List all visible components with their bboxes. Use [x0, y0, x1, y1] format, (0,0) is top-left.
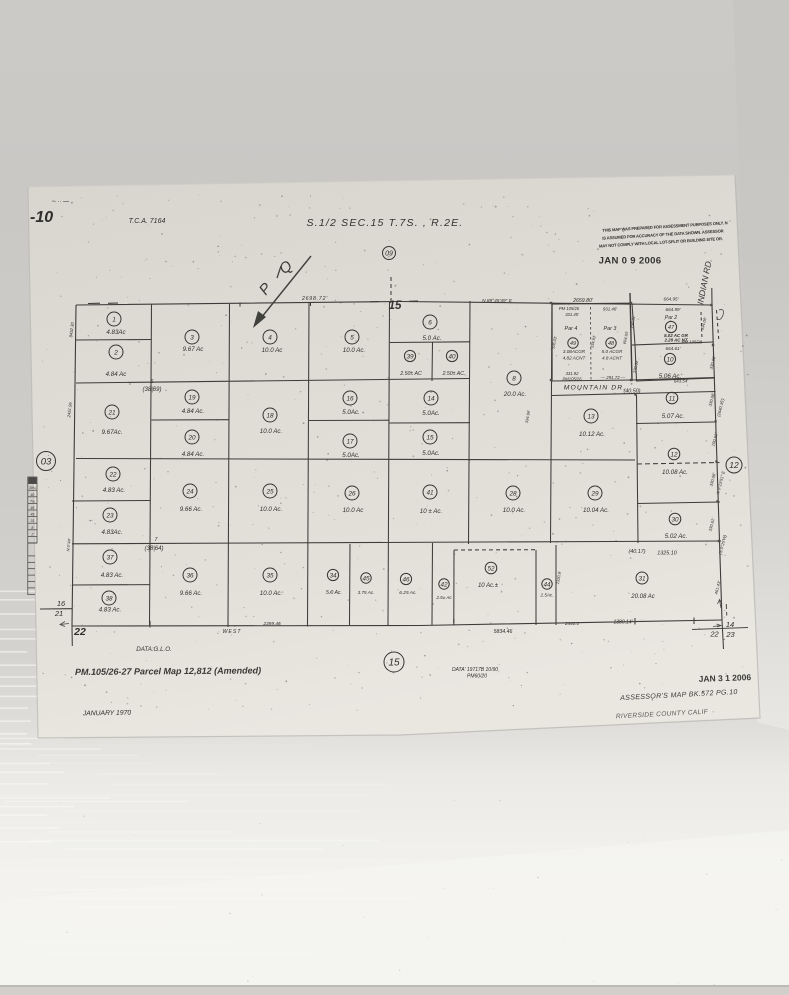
svg-text:49: 49: [570, 341, 576, 347]
svg-text:2.50± AC.: 2.50± AC.: [442, 371, 466, 377]
svg-text:4.82 ACNT: 4.82 ACNT: [563, 356, 587, 361]
svg-text:22: 22: [108, 471, 117, 478]
svg-text:5.0Ac.: 5.0Ac.: [422, 410, 440, 417]
svg-text:6.25 Ac.: 6.25 Ac.: [399, 590, 416, 596]
svg-text:7¼: 7¼: [30, 499, 35, 503]
svg-text:7: 7: [155, 537, 158, 543]
svg-text:10: 10: [666, 356, 674, 363]
svg-text:JANUARY 1970: JANUARY 1970: [82, 710, 132, 718]
svg-text:11: 11: [669, 395, 676, 402]
svg-text:12: 12: [729, 460, 739, 470]
svg-text:2: 2: [113, 349, 118, 356]
svg-text:5.0Ac.: 5.0Ac.: [342, 452, 360, 459]
svg-text:(40.50): (40.50): [623, 389, 640, 395]
svg-text:N 89°45′49″ E: N 89°45′49″ E: [482, 298, 513, 304]
svg-text:44: 44: [543, 581, 551, 588]
svg-text:22: 22: [73, 626, 86, 638]
svg-text:PM 105/28: PM 105/28: [682, 340, 703, 345]
svg-text:331.92: 331.92: [566, 371, 579, 376]
svg-text:Par 2: Par 2: [665, 315, 678, 321]
svg-text:3: 3: [190, 334, 194, 341]
svg-text:10.0 Ac: 10.0 Ac: [343, 507, 365, 514]
svg-text:03: 03: [41, 456, 52, 467]
svg-text:40: 40: [30, 493, 34, 497]
svg-text:10.08 Ac.: 10.08 Ac.: [662, 469, 688, 476]
svg-text:2.50± AC: 2.50± AC: [399, 371, 422, 377]
svg-text:28: 28: [508, 490, 517, 497]
svg-text:25: 25: [265, 488, 274, 495]
svg-text:JAN 0 9 2006: JAN 0 9 2006: [599, 256, 662, 267]
svg-text:35: 35: [266, 572, 274, 579]
svg-text:4.83 Ac.: 4.83 Ac.: [99, 607, 121, 614]
svg-text:5.02 Ac.: 5.02 Ac.: [665, 533, 687, 540]
svg-text:2440.0: 2440.0: [564, 621, 579, 626]
svg-text:36: 36: [186, 572, 194, 579]
svg-text:24: 24: [185, 488, 194, 495]
svg-text:5.0 Ac.: 5.0 Ac.: [422, 335, 441, 342]
svg-text:52: 52: [487, 565, 495, 572]
svg-text:10 Ac.±: 10 Ac.±: [478, 583, 499, 589]
svg-text:18: 18: [266, 412, 274, 419]
svg-text:5.0 Ac.: 5.0 Ac.: [326, 590, 342, 596]
svg-text:10.0 Ac.: 10.0 Ac.: [260, 590, 282, 597]
svg-text:2: 2: [30, 532, 33, 536]
svg-text:1380.14′: 1380.14′: [613, 620, 633, 626]
svg-text:2.5± Ac: 2.5± Ac: [435, 595, 452, 600]
svg-text:4.8 ACNT: 4.8 ACNT: [602, 356, 623, 361]
svg-text:4: 4: [268, 334, 272, 341]
svg-text:22: 22: [709, 630, 719, 639]
svg-text:2659.80′: 2659.80′: [572, 298, 594, 304]
svg-text:10.0 Ac.: 10.0 Ac.: [343, 347, 365, 354]
svg-text:15: 15: [388, 658, 400, 669]
svg-text:664.95′: 664.95′: [664, 297, 679, 302]
svg-text:14: 14: [427, 395, 435, 402]
svg-text:PM 105/26: PM 105/26: [559, 306, 580, 311]
svg-text:20.0 Ac.: 20.0 Ac.: [503, 391, 526, 398]
svg-text:49: 49: [30, 513, 34, 517]
svg-text:5834.46: 5834.46: [494, 629, 513, 635]
svg-text:29: 29: [590, 490, 599, 497]
svg-text:39¼: 39¼: [29, 486, 36, 490]
svg-text:2.5Ac.: 2.5Ac.: [539, 593, 553, 598]
svg-text:5: 5: [350, 334, 354, 341]
svg-text:6: 6: [428, 319, 432, 326]
svg-text:10 ± Ac.: 10 ± Ac.: [420, 508, 442, 515]
svg-text:21: 21: [54, 609, 63, 618]
svg-text:16: 16: [57, 599, 66, 608]
svg-text:8: 8: [31, 526, 33, 530]
svg-text:10.0 Ac.: 10.0 Ac.: [260, 428, 282, 435]
svg-text:PM105/26: PM105/26: [562, 377, 582, 382]
svg-text:37: 37: [106, 554, 114, 561]
svg-text:— 291.72 —: — 291.72 —: [600, 375, 626, 380]
svg-text:13: 13: [587, 413, 595, 420]
svg-text:23: 23: [725, 630, 735, 639]
svg-text:MOUNTAIN DR.: MOUNTAIN DR.: [564, 385, 627, 392]
svg-text:42: 42: [440, 581, 448, 588]
svg-text:4.83Ac: 4.83Ac: [106, 329, 126, 336]
svg-text:DATA′ 19717B 10/90: DATA′ 19717B 10/90: [452, 667, 498, 673]
svg-text:664.61′: 664.61′: [666, 346, 681, 351]
svg-text:4.84 Ac.: 4.84 Ac.: [182, 408, 204, 415]
svg-text:45: 45: [362, 575, 370, 582]
svg-text:17: 17: [346, 438, 354, 445]
svg-text:664.99′: 664.99′: [666, 307, 681, 312]
svg-text:48: 48: [608, 341, 614, 347]
svg-text:23: 23: [105, 512, 114, 519]
svg-text:10.04 Ac.: 10.04 Ac.: [583, 507, 609, 514]
svg-text:10.0 Ac.: 10.0 Ac.: [503, 507, 525, 514]
svg-text:9.66 Ac.: 9.66 Ac.: [180, 506, 202, 513]
svg-text:S.1/2 SEC.15 T.7S. , R.2E.: S.1/2 SEC.15 T.7S. , R.2E.: [307, 217, 464, 229]
svg-text:5.0Ac.: 5.0Ac.: [342, 409, 360, 416]
svg-text:10.12 Ac.: 10.12 Ac.: [579, 431, 605, 438]
svg-text:9.67 Ac: 9.67 Ac: [183, 346, 205, 353]
svg-text:10.0 Ac.: 10.0 Ac.: [260, 506, 282, 513]
svg-text:JAN 3 1 2006: JAN 3 1 2006: [699, 672, 752, 684]
svg-text:Par 3: Par 3: [604, 326, 617, 332]
svg-text:643.54′: 643.54′: [674, 379, 688, 384]
svg-text:2698.72′: 2698.72′: [301, 296, 328, 302]
svg-text:1325.10: 1325.10: [657, 551, 677, 557]
svg-text:-10: -10: [30, 209, 53, 226]
svg-text:20.08 Ac: 20.08 Ac: [630, 594, 654, 600]
svg-text:15: 15: [426, 434, 434, 441]
svg-text:(38|69): (38|69): [143, 387, 162, 393]
svg-text:WEST: WEST: [223, 629, 242, 635]
svg-text:331.45′: 331.45′: [565, 312, 579, 317]
svg-text:31: 31: [638, 575, 646, 582]
svg-text:3.08ACGR: 3.08ACGR: [563, 349, 586, 354]
svg-text:5.07 Ac.: 5.07 Ac.: [662, 413, 684, 420]
svg-text:4.83Ac.: 4.83Ac.: [102, 529, 123, 536]
svg-text:6: 6: [151, 379, 154, 385]
svg-text:46: 46: [30, 506, 34, 510]
svg-text:46: 46: [402, 576, 410, 583]
svg-text:DATA:G.L.O.: DATA:G.L.O.: [136, 646, 172, 653]
svg-text:39: 39: [406, 353, 414, 360]
svg-text:5.0Ac.: 5.0Ac.: [422, 450, 440, 457]
svg-text:19: 19: [188, 394, 196, 401]
svg-text:40: 40: [448, 353, 456, 360]
svg-text:26: 26: [347, 490, 356, 497]
svg-text:PM60/20: PM60/20: [467, 674, 487, 680]
svg-text:09: 09: [385, 251, 393, 258]
svg-text:4.83 Ac.: 4.83 Ac.: [103, 487, 125, 494]
svg-text:9.67Ac.: 9.67Ac.: [102, 429, 123, 436]
svg-text:5.0 ACGR: 5.0 ACGR: [602, 349, 623, 354]
svg-text:16: 16: [346, 395, 354, 402]
svg-text:20: 20: [187, 434, 196, 441]
svg-text:∼ ·· —: ∼ ·· —: [51, 199, 70, 205]
svg-text:931.46′: 931.46′: [603, 307, 617, 312]
svg-text:1: 1: [112, 316, 116, 323]
svg-text:41: 41: [426, 489, 434, 496]
svg-text:4.83 Ac.: 4.83 Ac.: [101, 572, 123, 579]
svg-text:4.84 Ac: 4.84 Ac: [106, 371, 128, 378]
svg-text:15: 15: [389, 300, 402, 312]
svg-text:31: 31: [30, 519, 34, 523]
svg-text:PM.105/26-27 Parcel Map 12,8: PM.105/26-27 Parcel Map 12,812 (Amended): [75, 665, 261, 677]
svg-text:(38|64): (38|64): [145, 546, 164, 552]
svg-text:Par 4: Par 4: [565, 326, 578, 332]
svg-text:47: 47: [668, 325, 675, 331]
svg-text:8: 8: [512, 375, 516, 382]
svg-text:21: 21: [107, 409, 116, 416]
svg-text:10.0 Ac: 10.0 Ac: [262, 347, 284, 354]
svg-text:9.66 Ac.: 9.66 Ac.: [180, 590, 202, 597]
svg-text:2399.46: 2399.46: [262, 621, 281, 627]
svg-text:12: 12: [670, 451, 678, 458]
svg-text:34: 34: [329, 572, 337, 579]
svg-text:4.84 Ac.: 4.84 Ac.: [182, 451, 204, 458]
svg-text:T.C.A. 7164: T.C.A. 7164: [129, 218, 166, 225]
svg-text:38: 38: [105, 595, 113, 602]
svg-text:(40.17): (40.17): [628, 549, 645, 555]
svg-text:3.75 Ac.: 3.75 Ac.: [358, 590, 375, 595]
svg-text:30: 30: [671, 516, 679, 523]
